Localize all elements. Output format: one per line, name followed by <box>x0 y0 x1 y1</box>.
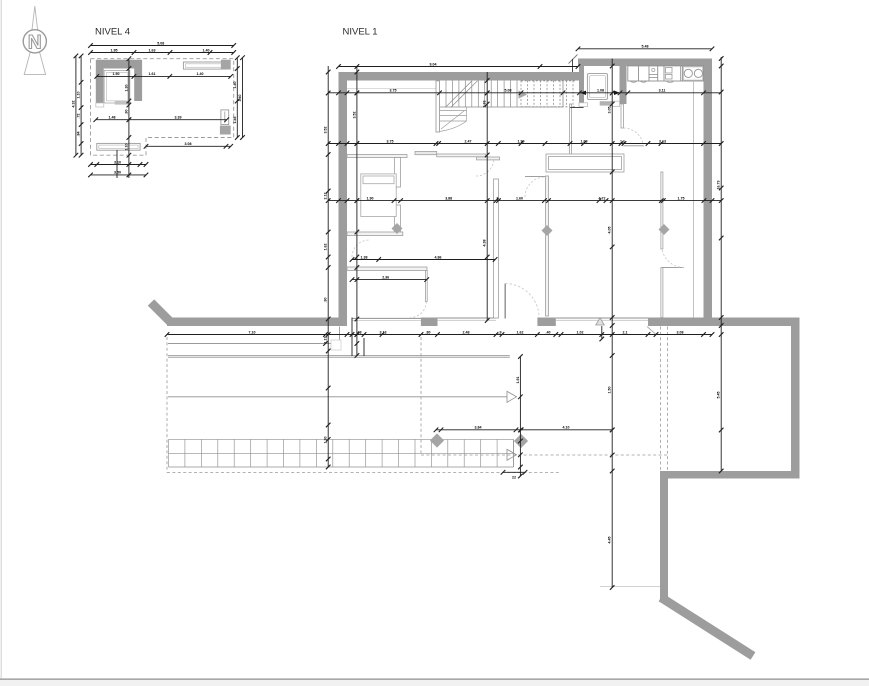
svg-text:.72: .72 <box>77 114 81 119</box>
svg-text:4.38: 4.38 <box>483 240 487 247</box>
svg-text:3.05: 3.05 <box>608 107 612 114</box>
svg-text:1.95: 1.95 <box>111 48 118 52</box>
svg-text:1.38: 1.38 <box>361 255 368 259</box>
svg-text:2.1: 2.1 <box>623 330 628 334</box>
svg-text:1.63: 1.63 <box>149 48 156 52</box>
svg-text:5.45: 5.45 <box>717 392 721 399</box>
svg-text:4.32: 4.32 <box>71 101 75 108</box>
svg-text:1.90: 1.90 <box>367 196 374 200</box>
svg-text:2.12: 2.12 <box>324 193 328 200</box>
svg-text:2.47: 2.47 <box>465 139 472 143</box>
svg-text:4.05: 4.05 <box>608 227 612 234</box>
svg-text:3.52: 3.52 <box>324 127 328 134</box>
svg-text:1.10: 1.10 <box>77 92 81 99</box>
svg-text:3.75: 3.75 <box>390 89 397 93</box>
svg-text:3.40: 3.40 <box>238 95 242 102</box>
svg-text:3.08: 3.08 <box>677 330 684 334</box>
svg-text:3.88: 3.88 <box>445 196 452 200</box>
svg-text:1.40: 1.40 <box>197 72 204 76</box>
svg-text:3.50: 3.50 <box>114 171 121 175</box>
svg-text:3.39: 3.39 <box>175 116 182 120</box>
svg-text:1.30: 1.30 <box>124 84 128 91</box>
svg-text:.48: .48 <box>357 330 362 334</box>
svg-text:3.11: 3.11 <box>659 89 666 93</box>
svg-text:3.75: 3.75 <box>387 139 394 143</box>
svg-text:1.50: 1.50 <box>113 72 120 76</box>
svg-text:1.91: 1.91 <box>516 377 520 384</box>
svg-text:16.73: 16.73 <box>717 181 721 190</box>
svg-text:1.60: 1.60 <box>516 196 523 200</box>
svg-text:NIVEL 1: NIVEL 1 <box>343 27 378 38</box>
svg-text:1.02: 1.02 <box>577 330 584 334</box>
svg-text:3.10: 3.10 <box>114 160 121 164</box>
svg-text:1.08: 1.08 <box>581 139 588 143</box>
svg-text:3.13: 3.13 <box>659 139 666 143</box>
svg-text:1.75: 1.75 <box>678 196 685 200</box>
svg-text:.84: .84 <box>77 132 81 137</box>
svg-text:1.48: 1.48 <box>109 116 116 120</box>
svg-text:1.62: 1.62 <box>324 244 328 251</box>
svg-text:3.84: 3.84 <box>475 426 482 430</box>
svg-text:N: N <box>28 32 42 53</box>
svg-text:7.10: 7.10 <box>249 330 256 334</box>
svg-text:.40: .40 <box>546 330 551 334</box>
svg-text:NIVEL 4: NIVEL 4 <box>95 27 130 38</box>
svg-text:1.61: 1.61 <box>149 72 156 76</box>
svg-text:1.40: 1.40 <box>233 82 237 89</box>
svg-text:.8: .8 <box>496 196 499 200</box>
svg-text:.90: .90 <box>124 109 128 114</box>
svg-text:1.30: 1.30 <box>324 437 328 444</box>
svg-text:5.08: 5.08 <box>505 89 512 93</box>
svg-text:1.45: 1.45 <box>233 117 237 124</box>
svg-text:1.40: 1.40 <box>203 48 210 52</box>
svg-text:.90: .90 <box>324 298 328 303</box>
svg-text:9.04: 9.04 <box>430 62 437 66</box>
svg-text:.9: .9 <box>499 330 502 334</box>
svg-text:5.08: 5.08 <box>157 41 164 45</box>
svg-text:22: 22 <box>512 476 516 480</box>
svg-text:1.62: 1.62 <box>517 330 524 334</box>
svg-text:5.48: 5.48 <box>642 45 649 49</box>
svg-text:4.10: 4.10 <box>563 426 570 430</box>
svg-text:1.10: 1.10 <box>124 144 128 151</box>
svg-text:3.13: 3.13 <box>380 330 387 334</box>
svg-text:2.33: 2.33 <box>483 101 487 108</box>
svg-text:1.50: 1.50 <box>608 387 612 394</box>
svg-text:3.52: 3.52 <box>352 112 356 119</box>
svg-text:4.72: 4.72 <box>599 196 606 200</box>
svg-text:2.48: 2.48 <box>463 330 470 334</box>
svg-text:.80: .80 <box>426 330 431 334</box>
svg-text:1.08: 1.08 <box>597 89 604 93</box>
svg-text:4.45: 4.45 <box>608 537 612 544</box>
svg-text:3.08: 3.08 <box>185 142 192 146</box>
svg-text:4.86: 4.86 <box>435 255 442 259</box>
svg-text:1.1: 1.1 <box>620 139 625 143</box>
svg-text:1.90: 1.90 <box>518 139 525 143</box>
svg-text:2.36: 2.36 <box>382 275 389 279</box>
